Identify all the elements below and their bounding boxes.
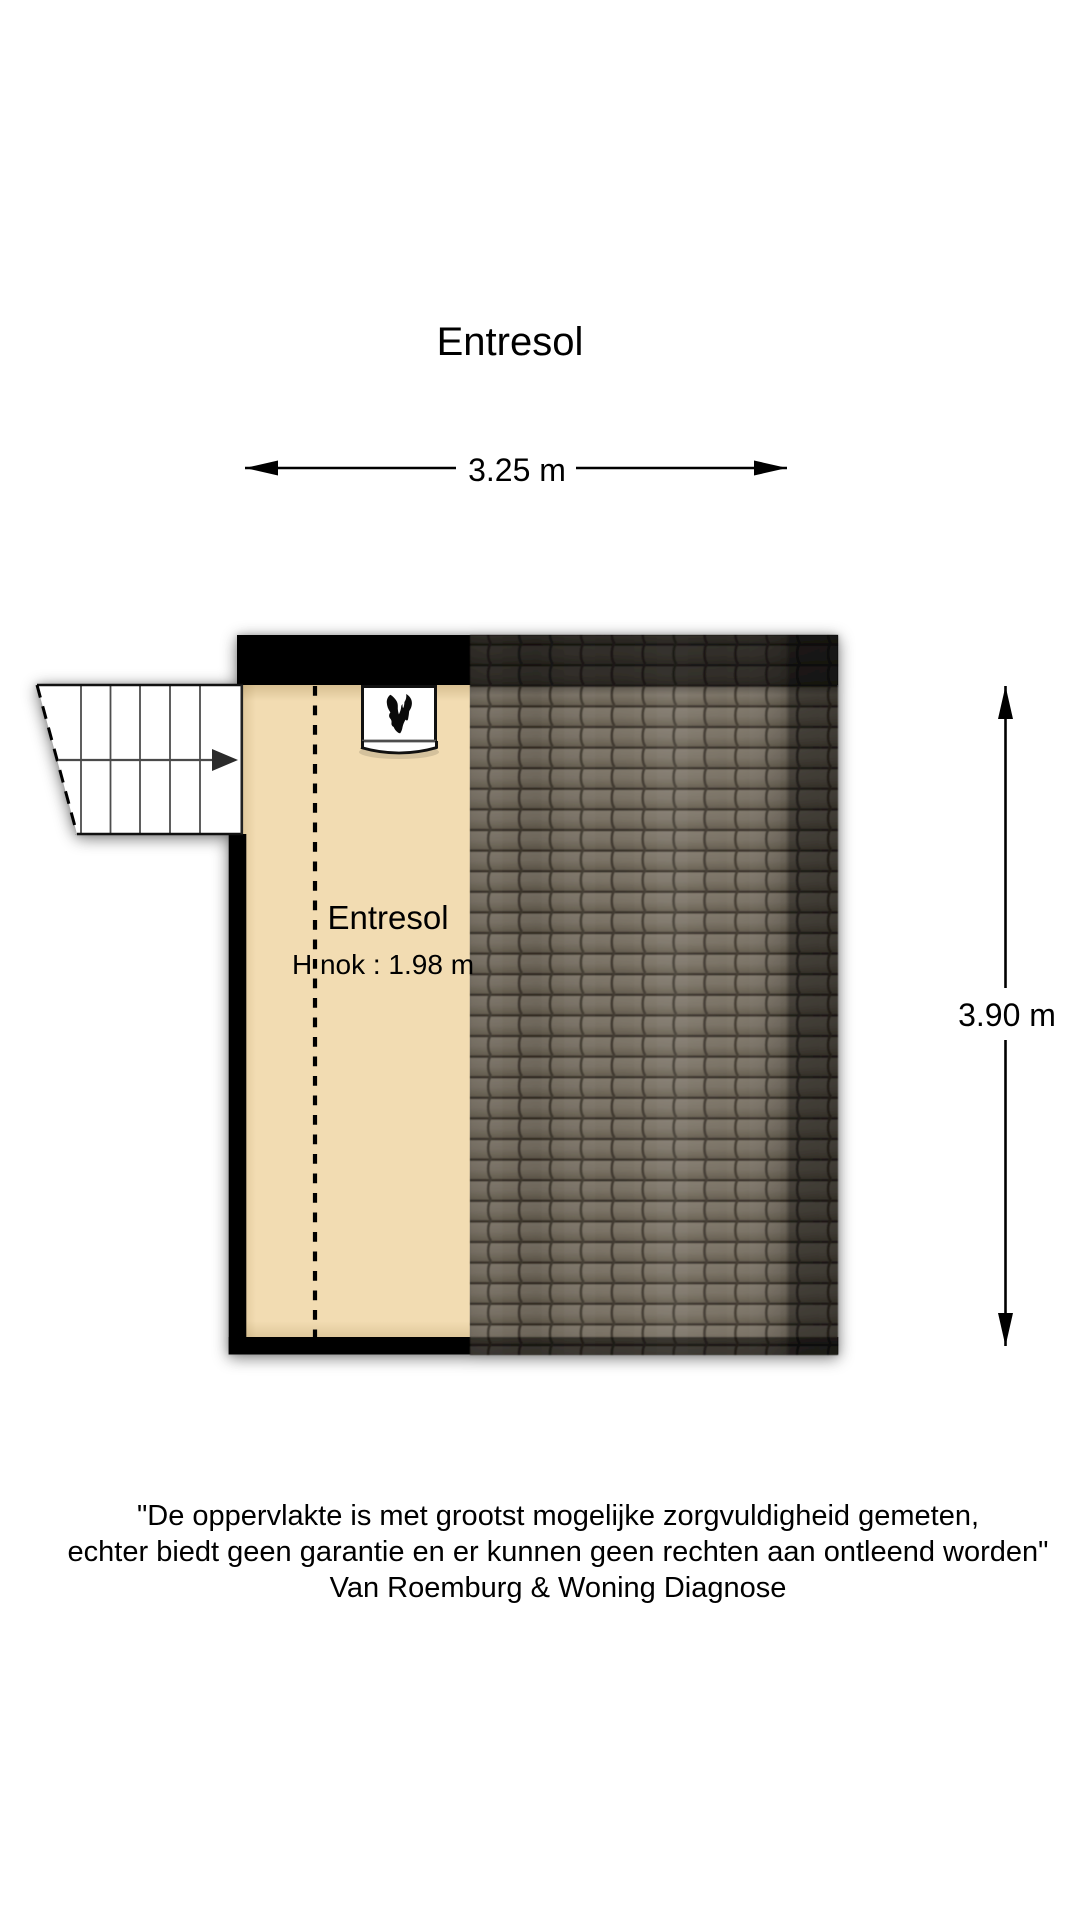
svg-text:3.25 m: 3.25 m bbox=[468, 452, 566, 488]
svg-text:Entresol: Entresol bbox=[327, 899, 448, 936]
svg-text:H nok : 1.98 m: H nok : 1.98 m bbox=[292, 949, 474, 980]
svg-text:3.90 m: 3.90 m bbox=[958, 997, 1056, 1033]
